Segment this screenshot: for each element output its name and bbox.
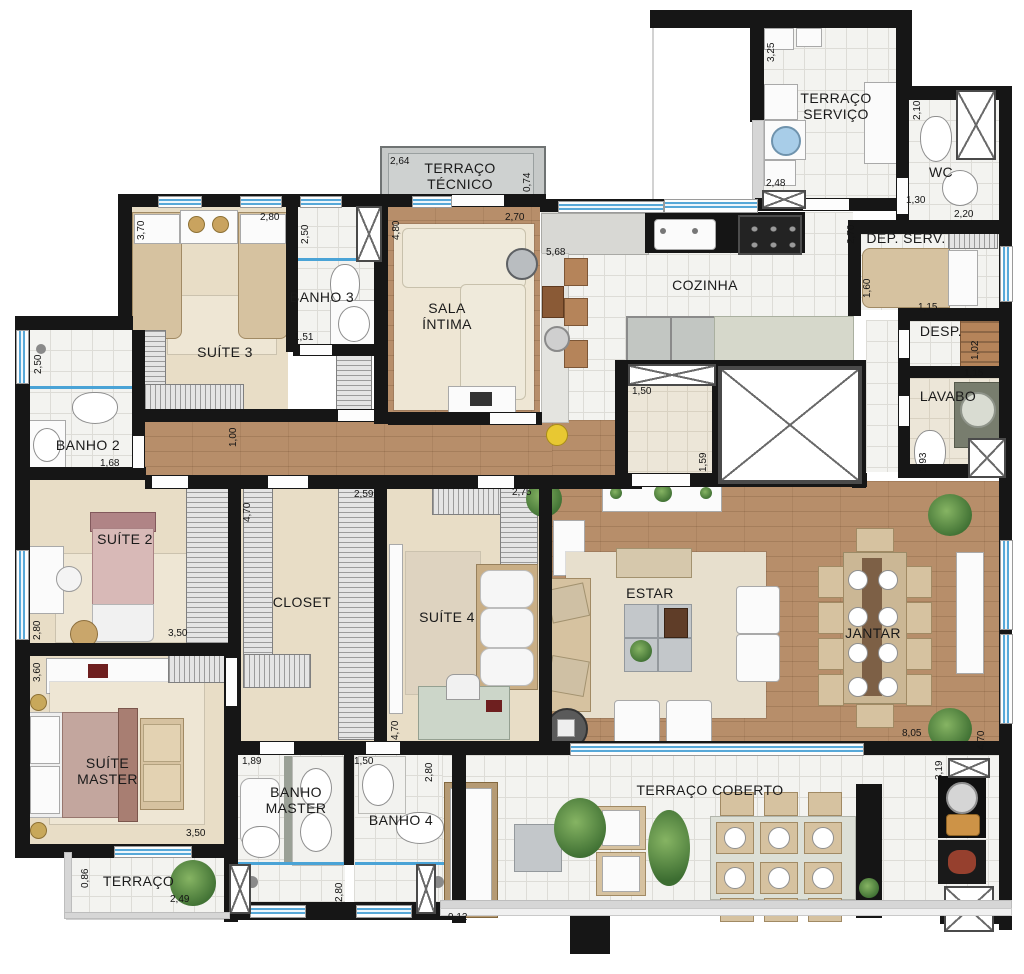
plate-icon — [878, 570, 898, 590]
cushion-icon — [480, 570, 534, 608]
door-opening — [338, 410, 374, 421]
duct-shaft — [762, 190, 806, 209]
cutting-board-icon — [946, 814, 980, 836]
dim-label: 2,75 — [512, 487, 531, 498]
toilet-icon — [72, 392, 118, 424]
chair-icon — [906, 674, 932, 706]
armchair-icon — [736, 634, 780, 682]
window — [158, 196, 202, 208]
washer-door-icon — [771, 126, 801, 156]
dim-label: 1,60 — [862, 279, 873, 298]
sink-icon — [300, 812, 332, 852]
wardrobe-icon — [338, 486, 376, 740]
dim-label: 2,49 — [170, 894, 189, 905]
room-label-desp: DESP. — [910, 323, 972, 339]
sink-icon — [338, 306, 370, 342]
dim-label: 4,70 — [242, 503, 253, 522]
chair-icon — [818, 638, 844, 670]
floor-corridor — [144, 421, 552, 477]
double-sink-icon — [654, 219, 716, 250]
plate-icon — [878, 607, 898, 627]
cushion-icon — [602, 856, 640, 892]
plate-icon — [878, 677, 898, 697]
dim-label: 4,70 — [976, 731, 987, 750]
wardrobe-icon — [168, 652, 232, 683]
room-label-dep-serv: DEP. SERV. — [858, 230, 954, 246]
duct-shaft — [229, 864, 251, 914]
chair-icon — [906, 602, 932, 634]
dim-label: 2,70 — [846, 225, 857, 244]
door-opening — [899, 330, 909, 358]
cabinet-icon — [564, 298, 588, 326]
wall — [15, 316, 133, 330]
dim-label: 3,60 — [32, 663, 43, 682]
stove-icon — [738, 215, 802, 255]
plant-icon — [928, 494, 972, 536]
toilet-icon — [920, 116, 952, 162]
plate-icon — [848, 677, 868, 697]
pillow-icon — [30, 716, 60, 764]
dim-label: 1,15 — [964, 368, 983, 379]
dim-label: 2,80 — [32, 621, 43, 640]
room-label-suite2: SUÍTE 2 — [80, 531, 170, 547]
dim-label: 0,86 — [80, 869, 91, 888]
chair-icon — [906, 638, 932, 670]
dim-label: 1,15 — [918, 302, 937, 313]
floor-plan: TERRAÇO TÉCNICO SUÍTE 3 BANHO 3 SALA ÍNT… — [0, 0, 1024, 974]
dim-label: 2,80 — [334, 883, 345, 902]
plate-icon — [848, 570, 868, 590]
sliding-door — [570, 743, 864, 756]
cushion-icon — [480, 648, 534, 686]
plate-icon — [848, 607, 868, 627]
dim-label: 8,05 — [902, 728, 921, 739]
armchair-icon — [666, 700, 712, 746]
room-label-banho-master: BANHO MASTER — [250, 784, 342, 816]
cutting-board-icon — [542, 286, 564, 318]
dim-label: 1,50 — [632, 386, 651, 397]
plant-icon — [554, 798, 606, 858]
armchair-icon — [614, 700, 660, 746]
door-opening — [133, 436, 144, 468]
shower-head-icon — [36, 344, 46, 354]
dim-label: 3,19 — [934, 761, 945, 780]
dim-label: 2,10 — [912, 101, 923, 120]
room-label-cozinha: COZINHA — [655, 277, 755, 293]
door-opening — [366, 742, 400, 754]
chair-icon — [856, 528, 894, 552]
dim-label: 1,02 — [970, 341, 981, 360]
door-opening — [152, 476, 188, 488]
sink-icon — [362, 764, 394, 806]
dim-label: 1,89 — [242, 756, 261, 767]
dim-label: 1,51 — [294, 332, 313, 343]
pillow-icon — [30, 766, 60, 814]
dim-label: 2,80 — [424, 763, 435, 782]
armchair-icon — [736, 586, 780, 634]
wardrobe-icon — [432, 486, 506, 515]
dim-label: 2,70 — [505, 212, 524, 223]
buffet-icon — [956, 552, 984, 674]
plant-icon — [648, 810, 690, 886]
chair-icon — [446, 674, 480, 700]
column — [570, 912, 610, 954]
room-label-suite3: SUÍTE 3 — [180, 344, 270, 360]
drain-icon — [692, 228, 698, 234]
room-label-suite-master: SUÍTE MASTER — [60, 755, 155, 787]
dim-label: 1,30 — [906, 195, 925, 206]
dim-label: 1,00 — [228, 428, 239, 447]
room-label-suite4: SUÍTE 4 — [402, 609, 492, 625]
speaker-icon — [557, 719, 575, 737]
room-label-wc: WC — [925, 164, 957, 180]
duct-shaft — [968, 438, 1006, 478]
door-opening — [300, 345, 332, 355]
room-label-estar: ESTAR — [610, 585, 690, 601]
door-opening — [478, 476, 514, 488]
dim-label: 1,68 — [100, 458, 119, 469]
room-label-terraco-tecnico: TERRAÇO TÉCNICO — [398, 160, 522, 192]
window — [412, 196, 452, 208]
bench-icon — [616, 548, 692, 578]
shower-glass — [355, 862, 452, 865]
cabinet-icon — [564, 258, 588, 286]
sconce-icon — [30, 822, 47, 839]
duct-shaft — [416, 864, 436, 914]
plate-icon — [878, 643, 898, 663]
room-label-terraco: TERRAÇO — [96, 873, 181, 889]
dim-label: 1,50 — [354, 756, 373, 767]
coffee-table-icon — [624, 604, 658, 638]
door-opening — [803, 199, 849, 210]
wall — [374, 480, 387, 744]
lamp-icon — [188, 216, 205, 233]
dim-label: 2,50 — [300, 225, 311, 244]
railing — [64, 912, 230, 919]
plate-icon — [768, 827, 790, 849]
door-opening — [260, 742, 294, 754]
wall — [898, 366, 1012, 378]
window — [1000, 634, 1013, 724]
chair-icon — [56, 566, 82, 592]
door-opening — [490, 413, 536, 424]
sconce-icon — [30, 694, 47, 711]
dim-label: 1,93 — [918, 453, 929, 472]
plant-icon — [859, 878, 879, 898]
toilet-icon — [242, 826, 280, 858]
entry-door-opening — [632, 474, 690, 486]
fruit-bowl-icon — [546, 424, 568, 446]
bed-sheet-icon — [92, 604, 154, 642]
chair-icon — [808, 792, 842, 816]
wall — [118, 194, 132, 330]
dim-label: 0,74 — [522, 173, 533, 192]
window — [356, 905, 412, 918]
door-opening — [268, 476, 308, 488]
window — [16, 330, 29, 384]
wall — [286, 205, 298, 352]
lamp-icon — [212, 216, 229, 233]
plate-icon — [848, 643, 868, 663]
window — [1000, 246, 1013, 302]
drain-icon — [660, 228, 666, 234]
wall — [896, 18, 912, 96]
room-label-banho3: BANHO 3 — [282, 289, 362, 305]
dim-label: 1,59 — [698, 453, 709, 472]
wall — [539, 480, 552, 744]
sink-icon — [946, 782, 978, 814]
laundry-sink-icon — [796, 28, 822, 47]
floor-service-corridor — [866, 320, 900, 472]
window — [664, 199, 758, 213]
coffee-table-icon — [658, 638, 692, 672]
dim-label: 2,64 — [390, 156, 409, 167]
chair-icon — [818, 674, 844, 706]
dim-label: 4,70 — [390, 721, 401, 740]
wall — [145, 475, 642, 489]
shower-glass — [238, 862, 345, 865]
mirror-panel-icon — [389, 544, 403, 714]
dim-label: 3,50 — [186, 828, 205, 839]
wall — [452, 741, 466, 923]
desk-accessory-icon — [486, 700, 502, 712]
room-label-terraco-coberto: TERRAÇO COBERTO — [622, 782, 798, 798]
wardrobe-icon — [243, 654, 311, 688]
railing — [440, 908, 1012, 916]
window — [558, 201, 664, 213]
room-label-banho2: BANHO 2 — [43, 437, 133, 453]
plant-icon — [700, 487, 712, 499]
dim-label: 3,70 — [136, 221, 147, 240]
bed-icon — [862, 248, 950, 308]
window — [1000, 540, 1013, 630]
room-label-closet: CLOSET — [257, 594, 347, 610]
room-label-terraco-servico: TERRAÇO SERVIÇO — [788, 90, 884, 122]
tv-icon — [470, 392, 492, 406]
cushion-icon — [602, 810, 640, 846]
dim-label: 2,80 — [260, 212, 279, 223]
wall — [344, 755, 354, 865]
window — [16, 550, 29, 640]
wall — [750, 26, 764, 122]
dresser-box-icon — [88, 664, 108, 678]
wardrobe-icon — [186, 486, 232, 650]
pillow-icon — [948, 250, 978, 306]
duct-shaft — [956, 90, 996, 160]
plant-icon — [630, 640, 652, 662]
chair-icon — [856, 704, 894, 728]
elevator-shaft — [718, 366, 862, 484]
duct-shaft — [948, 758, 990, 778]
dim-label: 4,80 — [391, 221, 402, 240]
room-label-banho4: BANHO 4 — [358, 812, 444, 828]
room-label-sala-intima: SALA ÍNTIMA — [404, 300, 490, 332]
shower-glass — [30, 386, 132, 389]
tray-icon — [664, 608, 688, 638]
wall — [29, 643, 228, 656]
window — [300, 196, 342, 208]
wall — [898, 308, 1012, 321]
dim-label: 2,48 — [766, 178, 785, 189]
dim-label: 9,12 — [448, 912, 467, 923]
plate-icon — [768, 867, 790, 889]
door-opening — [452, 195, 504, 206]
plate-icon — [812, 827, 834, 849]
dim-label: 3,25 — [766, 43, 777, 62]
dim-label: 2,59 — [354, 489, 373, 500]
railing — [64, 852, 72, 918]
plate-icon — [724, 867, 746, 889]
duct-shaft — [628, 364, 716, 386]
plate-icon — [724, 827, 746, 849]
room-label-jantar: JANTAR — [838, 625, 908, 641]
wall — [615, 360, 628, 488]
floor-lamp-icon — [506, 248, 538, 280]
dim-label: 5,68 — [546, 247, 565, 258]
wall — [650, 10, 912, 28]
door-opening — [226, 658, 237, 706]
duct-shaft — [356, 206, 382, 262]
prep-sink-icon — [544, 326, 570, 352]
window — [250, 905, 306, 918]
plate-icon — [812, 867, 834, 889]
chair-icon — [818, 566, 844, 598]
pillow-icon — [546, 655, 590, 697]
dim-label: 3,50 — [168, 628, 187, 639]
open-void — [652, 26, 762, 206]
window — [114, 846, 192, 858]
dim-label: 2,50 — [33, 355, 44, 374]
room-label-lavabo: LAVABO — [912, 388, 984, 404]
wall — [29, 467, 146, 480]
meat-icon — [948, 850, 976, 874]
wardrobe-icon — [336, 354, 372, 413]
door-opening — [899, 396, 909, 426]
chair-icon — [906, 566, 932, 598]
window — [240, 196, 282, 208]
dim-label: 2,20 — [954, 209, 973, 220]
